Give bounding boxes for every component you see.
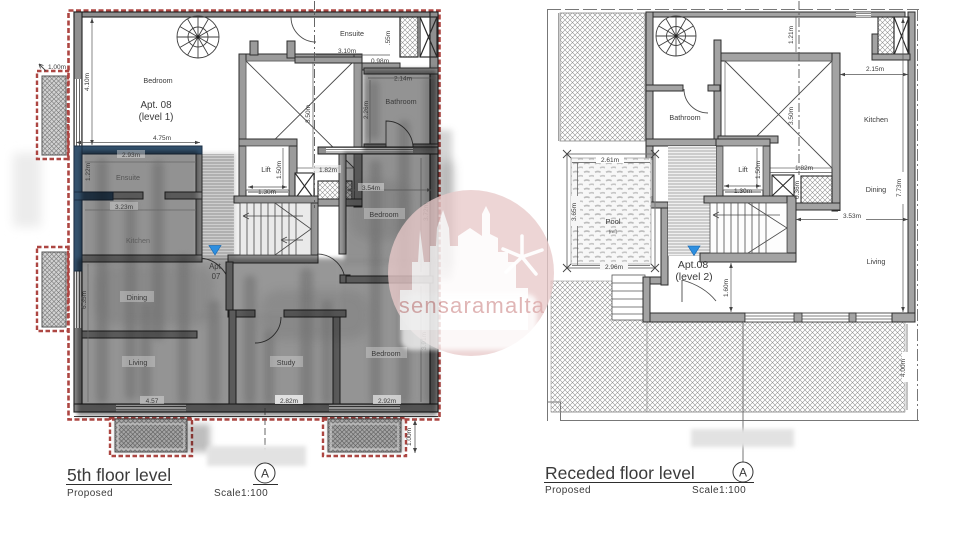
svg-text:Lift: Lift: [261, 165, 271, 174]
svg-text:4.10m: 4.10m: [84, 73, 91, 91]
svg-text:7.73m: 7.73m: [896, 179, 903, 197]
svg-text:A: A: [261, 467, 269, 481]
svg-text:Lift: Lift: [738, 165, 748, 174]
svg-text:5th floor level: 5th floor level: [67, 465, 171, 485]
svg-text:3.50m: 3.50m: [305, 105, 312, 123]
svg-text:Apt.08: Apt.08: [678, 259, 709, 271]
svg-text:Study: Study: [277, 358, 296, 367]
svg-text:1.60m: 1.60m: [723, 279, 730, 297]
svg-text:1.50m: 1.50m: [276, 161, 283, 179]
svg-text:2.61m: 2.61m: [601, 157, 619, 164]
svg-text:Proposed: Proposed: [545, 485, 591, 496]
svg-text:07: 07: [212, 272, 221, 281]
svg-text:Kitchen: Kitchen: [864, 115, 888, 124]
svg-text:3.65m: 3.65m: [571, 203, 578, 221]
svg-text:3.10m: 3.10m: [338, 48, 356, 55]
svg-text:Receded floor level: Receded floor level: [545, 463, 695, 483]
svg-text:1.82m: 1.82m: [319, 167, 337, 174]
svg-text:Pool: Pool: [605, 217, 620, 226]
svg-text:Bedroom: Bedroom: [143, 76, 172, 85]
svg-text:.55m: .55m: [385, 31, 392, 45]
svg-text:Apt.: Apt.: [209, 262, 223, 271]
svg-text:0.98m: 0.98m: [371, 58, 389, 65]
svg-text:(level 1): (level 1): [139, 112, 174, 123]
svg-text:Scale1:100: Scale1:100: [214, 488, 268, 499]
svg-text:sensaramalta: sensaramalta: [399, 293, 545, 318]
svg-text:1.21m: 1.21m: [788, 26, 795, 44]
svg-text:3.23m: 3.23m: [115, 204, 133, 211]
svg-text:Dining: Dining: [866, 185, 886, 194]
svg-text:A: A: [739, 466, 747, 480]
svg-text:(ref): (ref): [609, 229, 618, 234]
svg-text:1.00m: 1.00m: [406, 428, 413, 446]
svg-text:1.50m: 1.50m: [755, 161, 762, 179]
svg-text:6.35m: 6.35m: [81, 291, 88, 309]
svg-text:2.14m: 2.14m: [394, 76, 412, 83]
svg-text:2.26m: 2.26m: [363, 101, 370, 119]
svg-text:4.75m: 4.75m: [153, 135, 171, 142]
svg-text:Bedroom: Bedroom: [369, 210, 398, 219]
svg-text:1.82m: 1.82m: [795, 165, 813, 172]
svg-text:4.00m: 4.00m: [900, 359, 907, 377]
svg-text:Kitchen: Kitchen: [126, 236, 150, 245]
svg-text:Living: Living: [867, 257, 886, 266]
svg-text:3.50m: 3.50m: [788, 107, 795, 125]
svg-text:Scale1:100: Scale1:100: [692, 485, 746, 496]
svg-text:Living: Living: [129, 358, 148, 367]
svg-text:Dining: Dining: [127, 293, 147, 302]
svg-text:(level 2): (level 2): [675, 271, 712, 283]
svg-text:2.92m: 2.92m: [378, 398, 396, 405]
svg-text:Bathroom: Bathroom: [669, 113, 700, 122]
svg-text:2.93m: 2.93m: [122, 152, 140, 159]
svg-text:Apt. 08: Apt. 08: [140, 100, 172, 111]
svg-text:2.15m: 2.15m: [866, 66, 884, 73]
svg-text:2.96m: 2.96m: [605, 264, 623, 271]
svg-text:1.30m: 1.30m: [734, 188, 752, 195]
svg-text:Bedroom: Bedroom: [371, 349, 400, 358]
svg-text:4.57: 4.57: [146, 398, 159, 405]
svg-text:3.53m: 3.53m: [843, 213, 861, 220]
svg-text:Bathroom: Bathroom: [385, 97, 416, 106]
svg-text:Proposed: Proposed: [67, 488, 113, 499]
svg-text:1.00m: 1.00m: [48, 64, 66, 71]
svg-text:1.30m: 1.30m: [258, 189, 276, 196]
svg-text:Ensuite: Ensuite: [340, 29, 364, 38]
svg-text:3.54m: 3.54m: [362, 185, 380, 192]
svg-text:1.22m: 1.22m: [85, 163, 92, 181]
svg-text:2.82m: 2.82m: [280, 398, 298, 405]
svg-text:Ensuite: Ensuite: [116, 173, 140, 182]
svg-text:0.36m: 0.36m: [794, 181, 801, 199]
